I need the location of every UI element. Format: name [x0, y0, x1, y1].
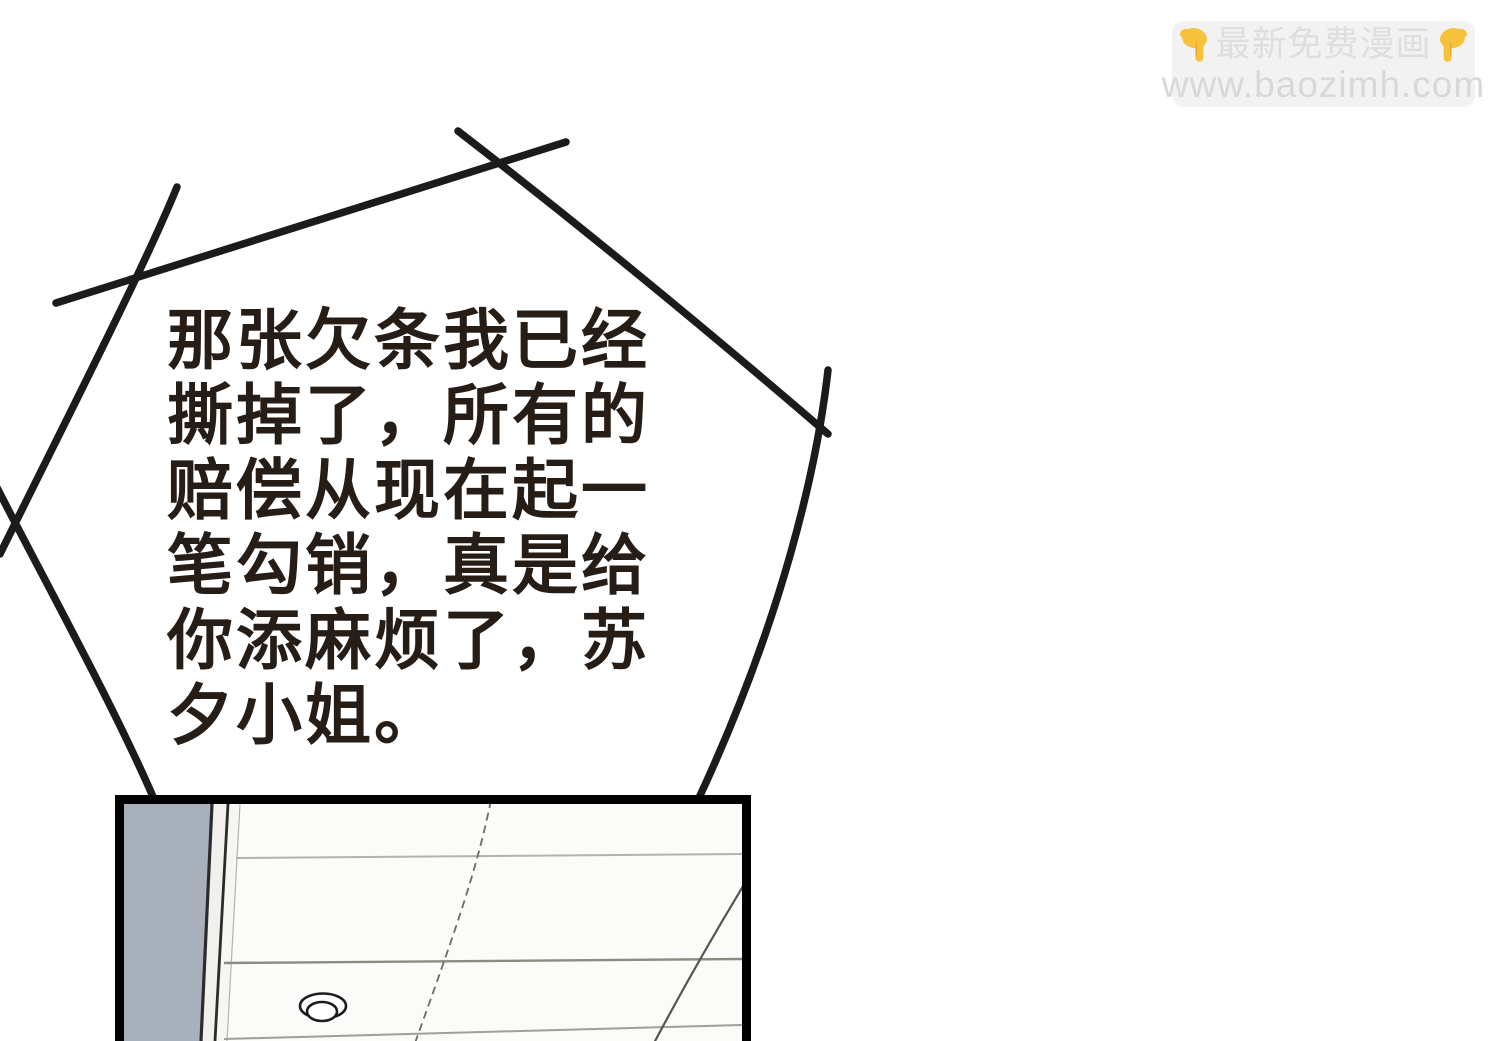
down-pointing-hand-icon [1177, 24, 1214, 66]
speech-line: 那张欠条我已经 [167, 303, 650, 378]
speech-line: 撕掉了，所有的 [167, 378, 650, 453]
comic-panel [115, 795, 751, 1041]
wall-band [124, 804, 212, 1041]
speech-line: 赔偿从现在起一 [167, 453, 650, 528]
down-pointing-hand-icon [1433, 24, 1470, 66]
watermark-title-row: 最新免费漫画 [1177, 24, 1469, 66]
watermark-badge: 最新免费漫画 www.baozimh.com [1172, 21, 1475, 107]
speech-text: 那张欠条我已经 撕掉了，所有的 赔偿从现在起一 笔勾销，真是给 你添麻烦了，苏 … [167, 303, 650, 753]
watermark-url: www.baozimh.com [1162, 66, 1485, 104]
speech-line: 你添麻烦了，苏 [167, 603, 650, 678]
speech-line: 笔勾销，真是给 [167, 528, 650, 603]
comic-page: 最新免费漫画 www.baozimh.com 那张欠条我已经 撕掉了，所有的 赔… [0, 0, 1500, 1041]
ceiling-light-inner [307, 1002, 337, 1021]
bubble-stroke-left [0, 187, 177, 554]
bubble-stroke-right [698, 370, 828, 800]
bubble-stroke-bottom-left [0, 478, 154, 799]
watermark-title: 最新免费漫画 [1215, 26, 1431, 64]
speech-line: 夕小姐。 [167, 678, 650, 753]
panel-scene [124, 804, 742, 1041]
bubble-stroke-top-left [56, 142, 566, 303]
